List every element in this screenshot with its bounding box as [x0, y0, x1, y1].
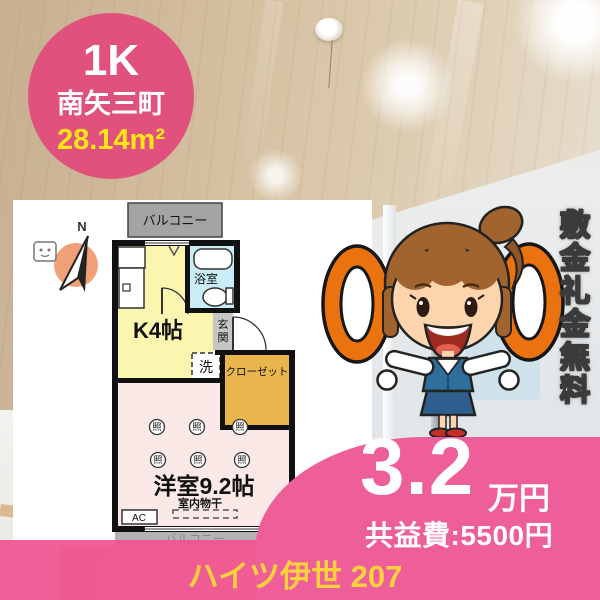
light-symbol: 照 — [153, 455, 162, 465]
zero-symbol-left — [323, 246, 391, 362]
washer-label: 洗 — [199, 359, 213, 375]
toilet-tank — [226, 288, 233, 304]
vest-button — [446, 385, 449, 388]
eye-glint — [467, 301, 471, 305]
property-name: ハイツ伊世 207 — [130, 551, 460, 596]
layout-type: 1K — [83, 36, 139, 85]
floor-area: 28.14m² — [57, 124, 165, 156]
hand-right — [500, 371, 519, 390]
indoor-drying-label: 室内物干 — [178, 496, 222, 510]
vest-button — [446, 379, 449, 382]
light-symbol: 照 — [152, 422, 161, 432]
bathtub — [194, 249, 232, 269]
rent-amount: 3.2 — [360, 427, 474, 507]
light-symbol: 照 — [192, 422, 201, 432]
light-symbol: 照 — [237, 455, 246, 465]
property-info-badge: 1K 南矢三町 28.14m² — [28, 13, 194, 179]
toilet — [203, 288, 227, 306]
entrance-label-char1: 玄 — [218, 317, 229, 331]
entrance-label-char2: 関 — [218, 331, 229, 344]
district-name: 南矢三町 — [57, 89, 165, 119]
closet-label: クローゼット — [226, 366, 289, 378]
balcony-top-label: バルコニー — [143, 213, 208, 228]
no-deposit-banner: 敷金礼金無料 — [549, 209, 593, 429]
bath-label: 浴室 — [194, 271, 218, 286]
entrance-door — [233, 317, 266, 350]
rent-unit: 万円 — [488, 473, 550, 518]
kitchen-label: K4帖 — [133, 318, 183, 343]
bangs — [458, 248, 500, 290]
common-fee: 共益費:5500円 — [365, 514, 553, 554]
mascot-and-zeros — [315, 195, 565, 440]
light-symbol: 照 — [193, 455, 202, 465]
ac-label: AC — [132, 513, 146, 524]
listing-image: 1K 南矢三町 28.14m² N バルコニー — [0, 0, 600, 600]
sink-faucet — [123, 284, 130, 291]
house-doodle-icon — [34, 242, 56, 261]
room-label: 洋室9.2帖 — [154, 473, 255, 499]
eye-left — [417, 297, 430, 317]
light-symbol: 照 — [235, 422, 244, 432]
compass-icon: N — [54, 219, 98, 292]
eye-glint — [419, 301, 423, 305]
smoke-detector-icon — [315, 18, 343, 41]
kitchen-counter — [118, 247, 145, 268]
mascot-character — [378, 200, 529, 437]
eye-right — [465, 297, 478, 317]
hand-left — [378, 371, 397, 390]
skirt — [421, 391, 475, 415]
compass-north-label: N — [77, 219, 86, 234]
